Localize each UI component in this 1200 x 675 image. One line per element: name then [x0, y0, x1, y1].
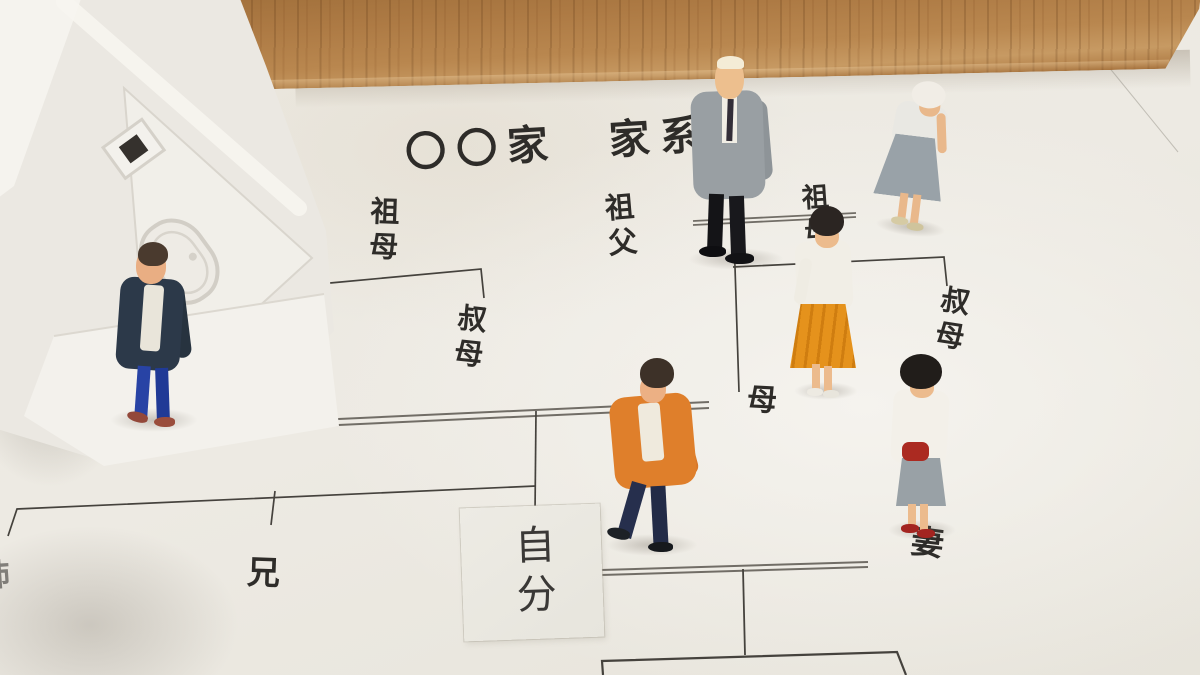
label-paternal-aunt: 叔母	[448, 302, 486, 375]
wife-figurine	[864, 354, 966, 538]
figurine-shoe	[154, 417, 175, 427]
mother-figurine	[768, 206, 870, 398]
self-memo-patch: 自分	[460, 504, 605, 642]
figurine-hair	[138, 242, 168, 266]
figurine-shoe	[823, 390, 839, 398]
figurine-skirt	[790, 304, 856, 368]
label-older-brother: 兄	[246, 554, 280, 591]
figurine-shoe	[648, 542, 673, 552]
figurine-hair	[640, 358, 674, 388]
figurine-leg	[650, 486, 668, 547]
label-maternal-grandfather: 祖父	[600, 191, 637, 263]
figurine-skirt	[896, 458, 946, 506]
photo-family-tree-scene: 自分 〇〇家 家系図 祖父 祖母 叔母 父 祖父 祖母 叔母 母 兄 姉 妻	[0, 0, 1200, 675]
figurine-handbag	[902, 442, 929, 461]
figurine-leg	[729, 196, 746, 256]
figurine-hair	[810, 206, 844, 236]
figurine-leg	[920, 504, 928, 531]
figurine-leg	[824, 366, 832, 392]
figurine-leg	[707, 194, 724, 252]
figurine-shoe	[725, 253, 754, 264]
figurine-shoe	[699, 246, 726, 257]
figurine-arm	[936, 113, 946, 153]
father-figurine	[98, 240, 208, 430]
label-self: 自分	[501, 523, 562, 623]
figurine-hair	[900, 354, 942, 389]
figurine-leg	[812, 364, 820, 390]
figurine-shoe	[917, 529, 935, 538]
label-paternal-grandmother: 祖母	[365, 195, 399, 266]
self-figurine	[588, 358, 712, 552]
figurine-hair	[717, 56, 744, 69]
figurine-leg	[155, 368, 170, 420]
figurine-shoe	[807, 388, 823, 396]
